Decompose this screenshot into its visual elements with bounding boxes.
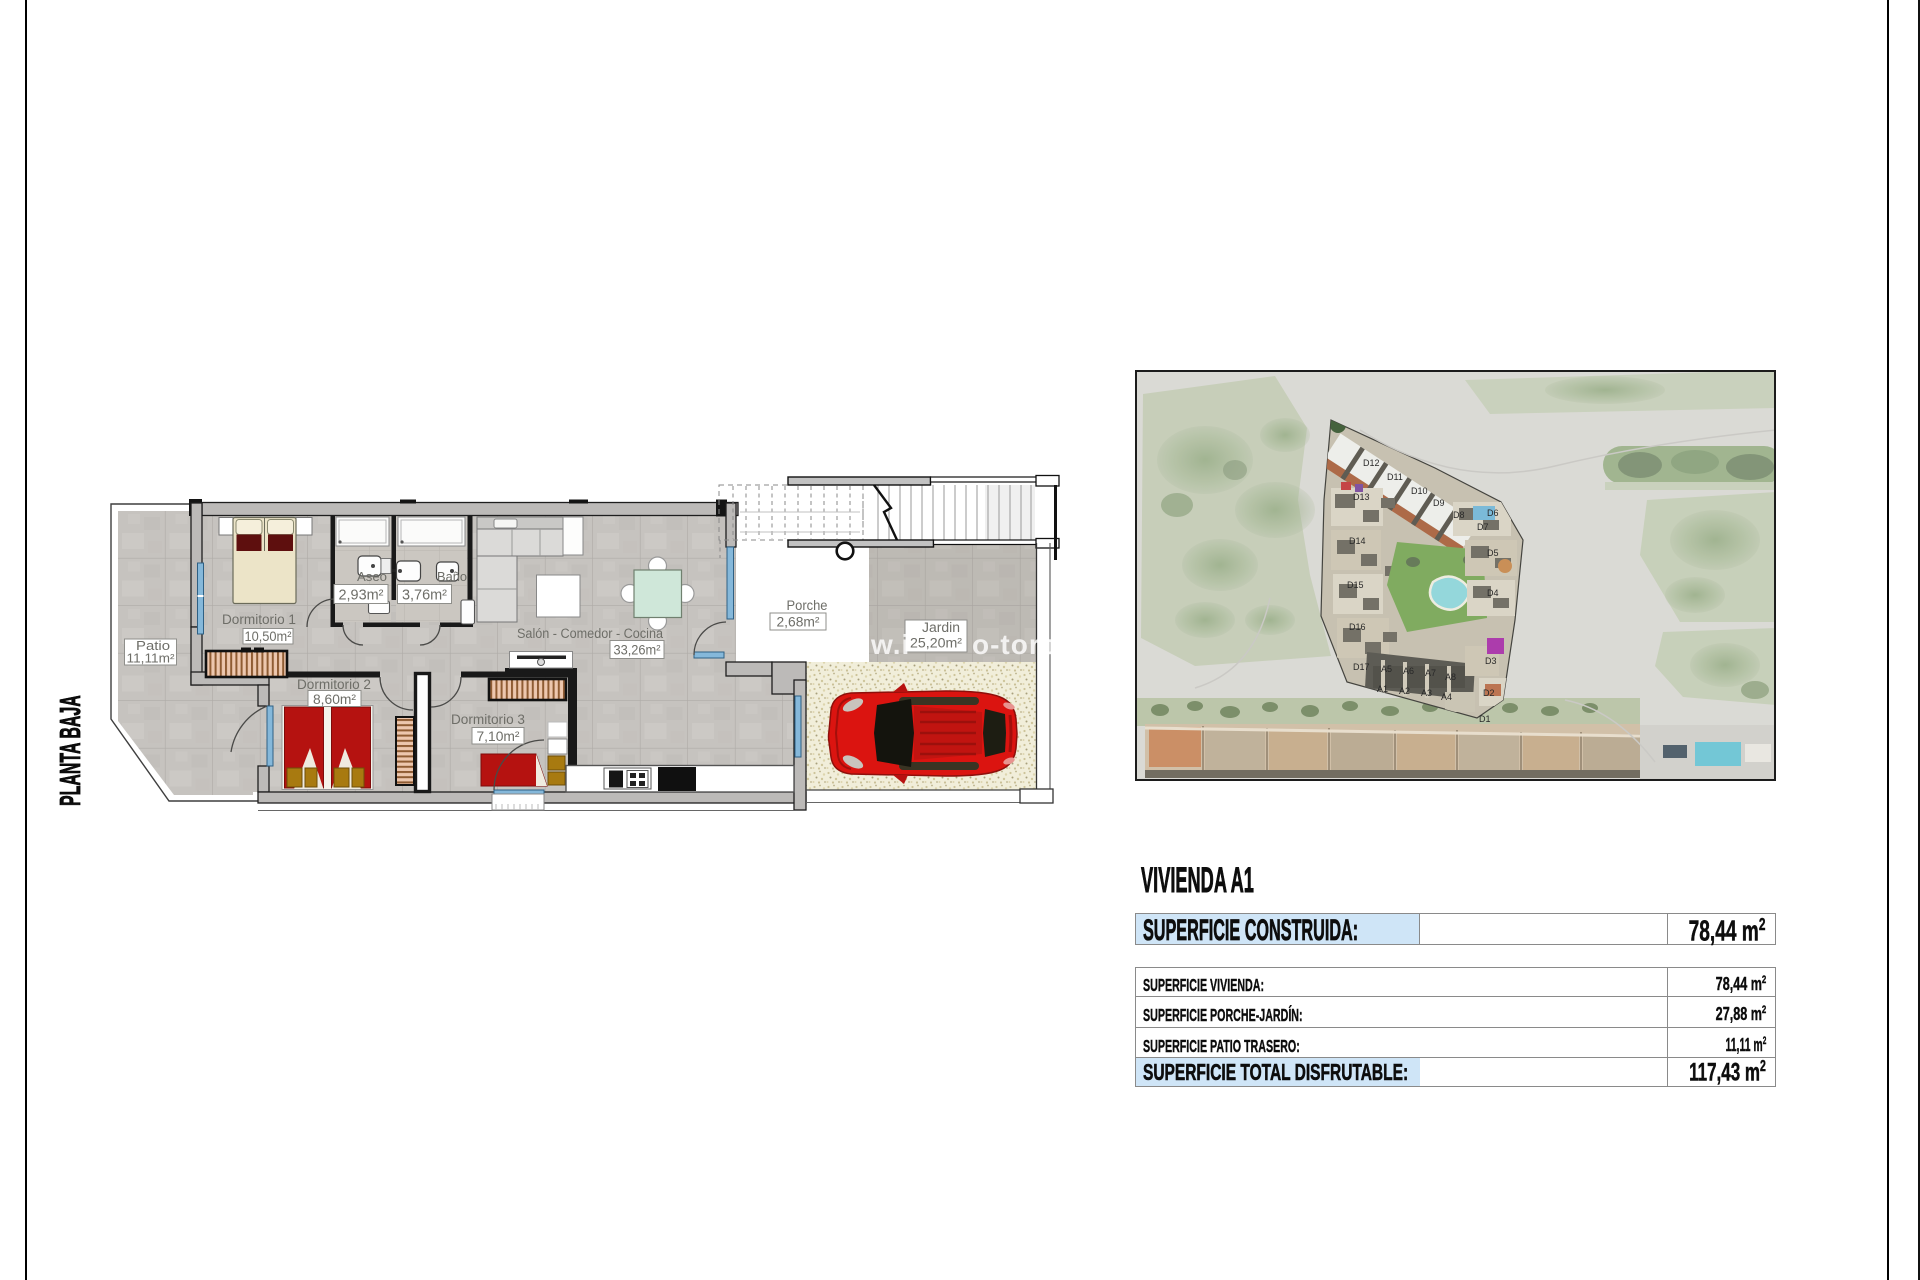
svg-text:10,50m²: 10,50m² [245, 629, 292, 644]
svg-text:Porche: Porche [787, 598, 828, 613]
svg-text:Baño: Baño [437, 570, 467, 584]
svg-text:2,93m²: 2,93m² [339, 588, 384, 604]
svg-text:8,60m²: 8,60m² [313, 691, 356, 707]
svg-text:11,11m²: 11,11m² [127, 651, 176, 666]
svg-text:3,76m²: 3,76m² [402, 588, 447, 604]
svg-text:Dormitorio 3: Dormitorio 3 [451, 712, 525, 727]
svg-text:Aseo: Aseo [357, 570, 387, 584]
svg-text:Dormitorio 1: Dormitorio 1 [222, 612, 296, 627]
svg-text:33,26m²: 33,26m² [614, 643, 661, 658]
svg-text:Salón - Comedor - Cocina: Salón - Comedor - Cocina [517, 626, 663, 641]
svg-text:25,20m²: 25,20m² [910, 636, 963, 651]
svg-text:7,10m²: 7,10m² [477, 728, 520, 744]
svg-text:Dormitorio 2: Dormitorio 2 [297, 677, 371, 692]
svg-text:Jardin: Jardin [922, 620, 960, 635]
svg-text:2,68m²: 2,68m² [777, 615, 821, 630]
